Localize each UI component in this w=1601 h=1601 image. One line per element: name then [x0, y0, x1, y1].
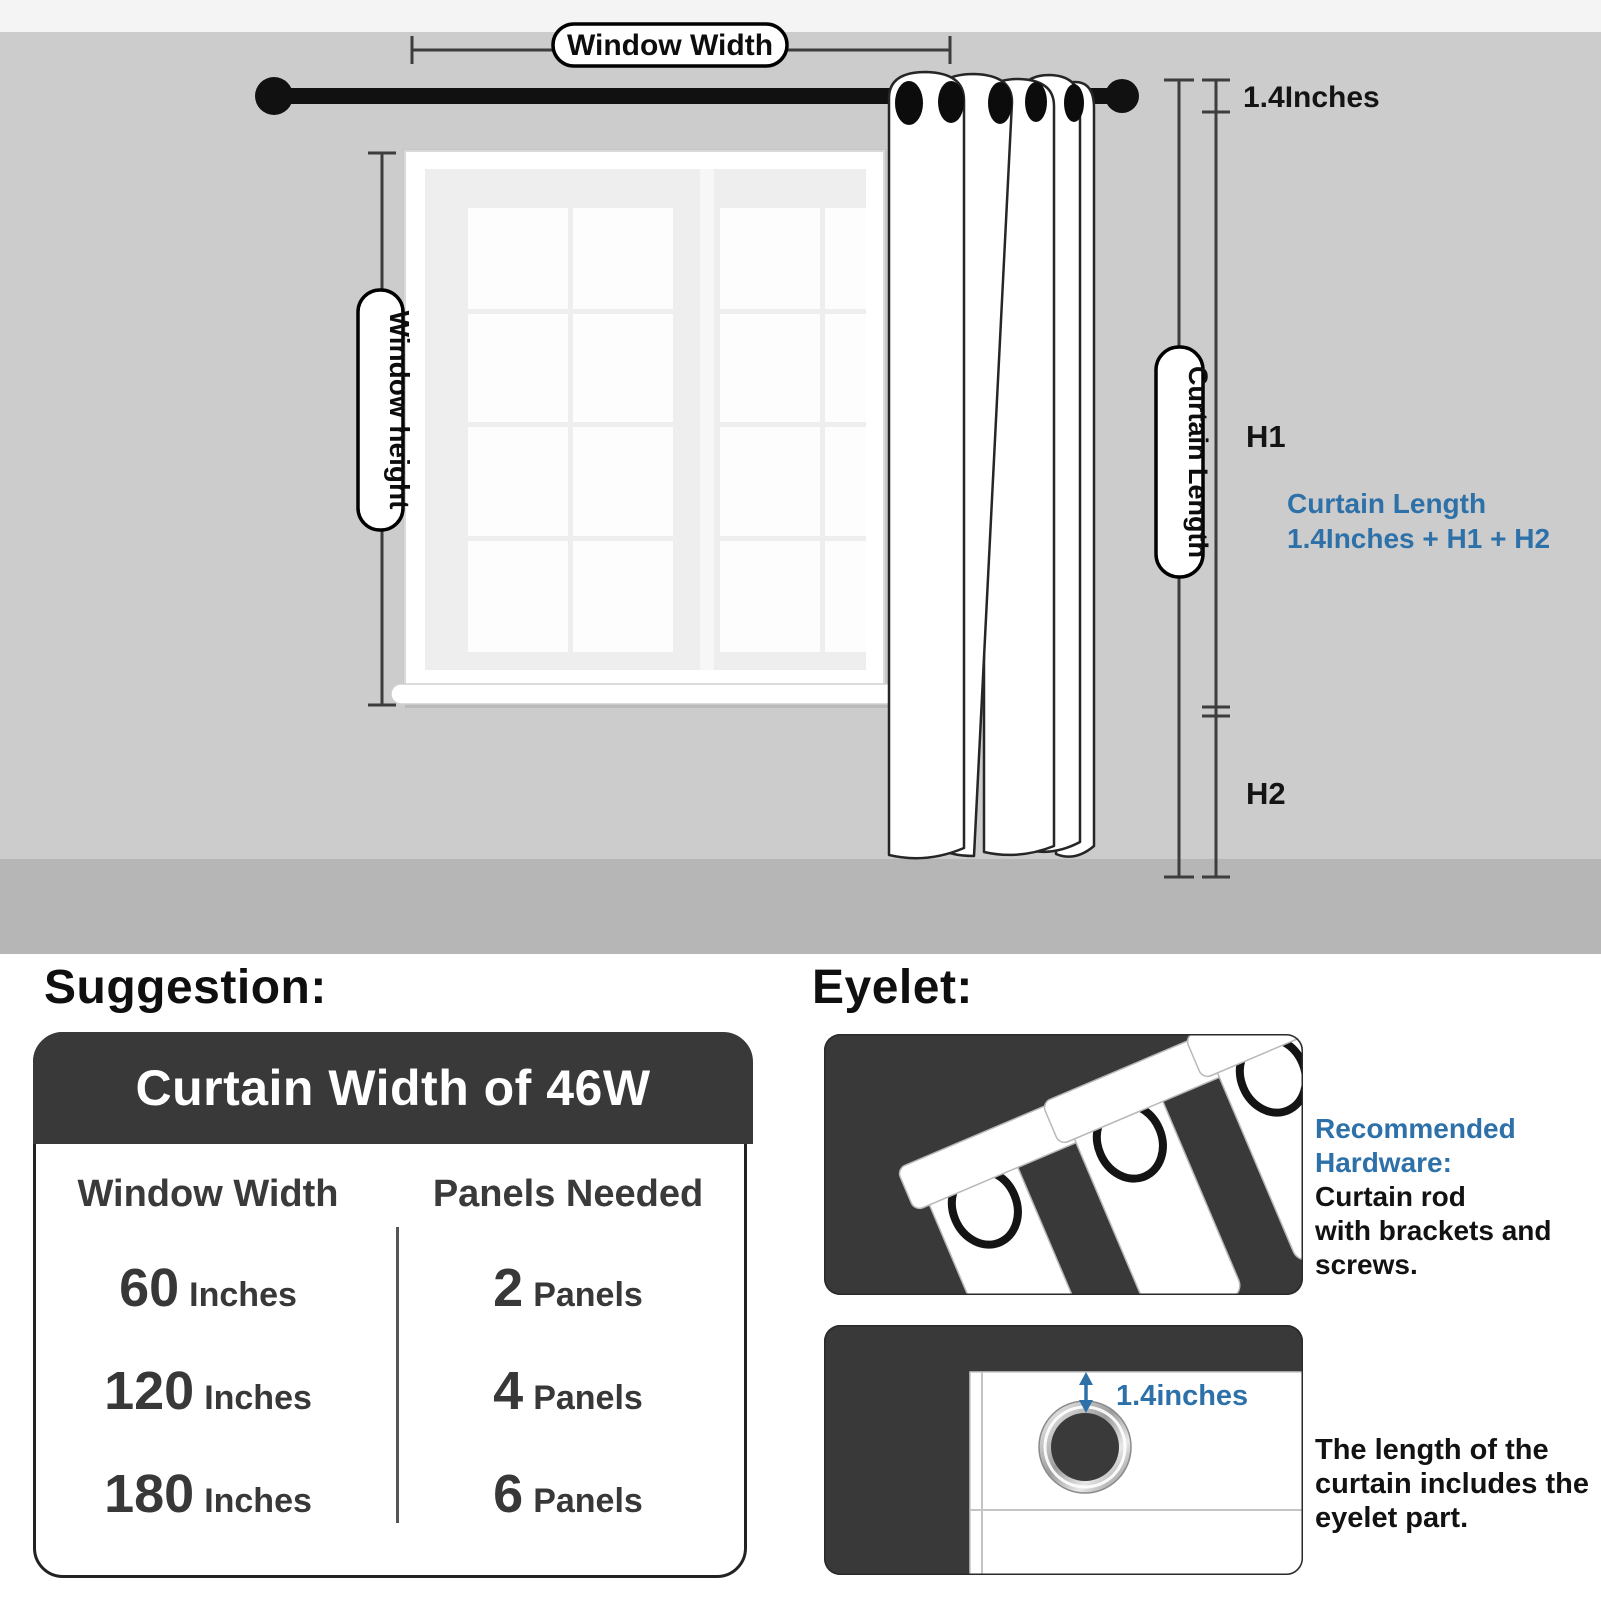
h2-label: H2 [1246, 776, 1286, 811]
hardware-body-line3: screws. [1315, 1248, 1595, 1282]
ceiling-band [0, 0, 1601, 32]
h1-label: H1 [1246, 419, 1286, 454]
note-line1: The length of the [1315, 1433, 1601, 1467]
rod-finial-left [255, 77, 293, 115]
eyelet-heading: Eyelet: [812, 960, 973, 1015]
table-row-1-panels: 2Panels [398, 1257, 738, 1319]
window-height-label: Window height [384, 311, 415, 510]
measuring-scene: Window Width Window height Curtain Lengt… [0, 0, 1601, 954]
suggestion-card-title: Curtain Width of 46W [33, 1032, 753, 1144]
hardware-title-line2: Hardware: [1315, 1146, 1595, 1180]
column-header-panels-needed: Panels Needed [398, 1173, 738, 1216]
rod-finial-right [1105, 79, 1139, 113]
table-row-1-width: 60Inches [38, 1257, 378, 1319]
table-row-3-width: 180Inches [38, 1463, 378, 1525]
note-line3: eyelet part. [1315, 1501, 1601, 1535]
eyelet-note-text: The length of the curtain includes the e… [1315, 1433, 1601, 1535]
rod-offset-label: 1.4Inches [1243, 81, 1380, 114]
floor [0, 859, 1601, 954]
hardware-title-line1: Recommended [1315, 1112, 1595, 1146]
suggestion-heading: Suggestion: [44, 960, 327, 1015]
table-row-3-panels: 6Panels [398, 1463, 738, 1525]
hardware-body-line2: with brackets and [1315, 1214, 1595, 1248]
eyelet-folds-illustration [824, 1034, 1303, 1295]
window [391, 149, 911, 708]
curtain-length-formula-title: Curtain Length [1287, 488, 1486, 519]
window-sash-divider [700, 169, 714, 670]
hardware-body-line1: Curtain rod [1315, 1180, 1595, 1214]
window-width-pill: Window Width [553, 24, 787, 66]
note-line2: curtain includes the [1315, 1467, 1601, 1501]
curtain-measuring-guide: Window Width Window height Curtain Lengt… [0, 0, 1601, 1601]
window-height-pill: Window height [358, 290, 415, 530]
curtain-length-formula: 1.4Inches + H1 + H2 [1287, 523, 1550, 554]
curtain-length-pill: Curtain Length [1156, 347, 1213, 577]
window-panes-right [720, 208, 866, 652]
column-header-window-width: Window Width [38, 1173, 378, 1216]
eyelet-closeup-illustration: 1.4inches [824, 1325, 1303, 1575]
window-width-label: Window Width [567, 29, 773, 62]
eyelet-offset-label: 1.4inches [1116, 1380, 1248, 1412]
suggestion-card: Curtain Width of 46W Window Width Panels… [33, 1032, 747, 1578]
eyelet-ring [1039, 1401, 1131, 1493]
curtain-length-pill-label: Curtain Length [1183, 366, 1213, 558]
recommended-hardware-text: Recommended Hardware: Curtain rod with b… [1315, 1112, 1595, 1282]
curtain-panel [889, 72, 1094, 858]
table-row-2-panels: 4Panels [398, 1360, 738, 1422]
table-row-2-width: 120Inches [38, 1360, 378, 1422]
window-sill [391, 684, 911, 704]
